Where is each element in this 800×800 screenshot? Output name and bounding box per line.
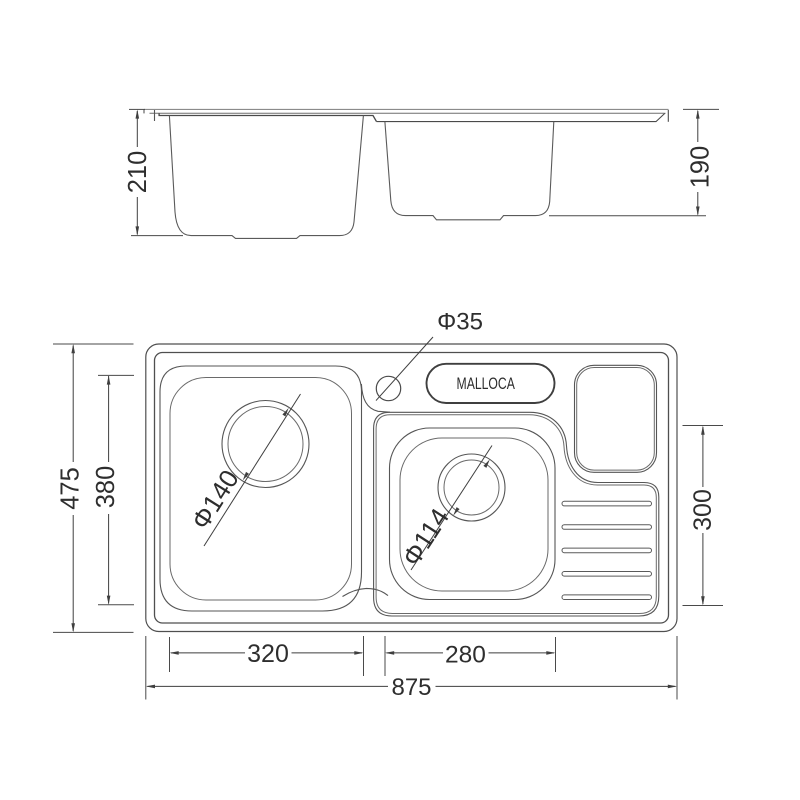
svg-text:875: 875: [391, 674, 431, 701]
svg-text:MALLOCA: MALLOCA: [457, 376, 516, 394]
svg-text:300: 300: [689, 489, 717, 531]
svg-text:210: 210: [124, 151, 152, 194]
svg-text:380: 380: [92, 466, 120, 509]
svg-text:475: 475: [57, 467, 85, 510]
svg-text:Φ35: Φ35: [437, 309, 483, 336]
svg-text:190: 190: [686, 146, 714, 189]
svg-text:320: 320: [247, 640, 289, 668]
svg-text:280: 280: [445, 642, 486, 669]
